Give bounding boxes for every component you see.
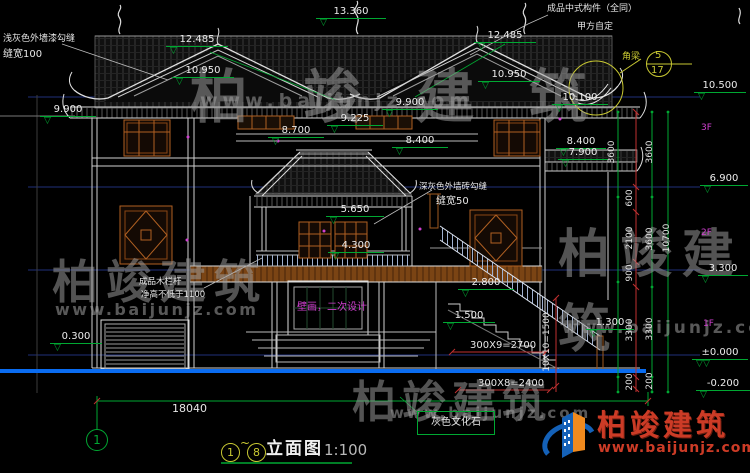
elevation-marker: 13.360▽: [316, 6, 386, 19]
note-paint-line1: 浅灰色外墙漆勾缝: [3, 35, 75, 45]
dim-floor-height: 3600: [607, 132, 617, 172]
dim-floor-height: 200: [625, 362, 635, 402]
dim-floor-height: 600: [625, 178, 635, 218]
elevation-marker: 8.400▽: [392, 135, 448, 148]
note-stone-box: 灰色文化石: [417, 411, 495, 435]
note-component-line1: 成品中式构件（全同）: [547, 5, 637, 15]
dim-floor-height: 3300: [645, 309, 655, 349]
dim-steps-lower: 300X8=2400: [478, 378, 544, 389]
title-axis-to: 8: [247, 443, 266, 462]
dim-floor-height: 200: [645, 361, 655, 401]
elevation-marker: 0.300▽: [50, 331, 102, 344]
elevation-marker: 5.650▽: [326, 204, 384, 217]
drawing-title: 立面图: [266, 440, 323, 459]
ridge-ornament-icon: [118, 1, 740, 34]
brand-logo-text: 柏竣建筑: [597, 402, 729, 444]
dim-stair-vertical: 10X10=1500: [542, 312, 552, 372]
brand-logo-icon: [538, 398, 600, 470]
elevation-marker: 1.500▽: [443, 310, 495, 323]
elevation-marker: 10.500▽: [694, 80, 746, 93]
watermark-url-left: www.baijunjz.com: [55, 300, 258, 319]
note-railing-line2: 净高不低于1100: [141, 291, 205, 300]
drawing-scale: 1:100: [324, 442, 367, 459]
elevation-marker: -0.200▽: [696, 378, 750, 391]
dim-floor-height: 900: [625, 253, 635, 293]
detail-number: 5: [655, 50, 661, 61]
entrance-steps: [246, 332, 436, 362]
elevation-marker: 7.900▽: [558, 147, 608, 160]
note-mural: 壁画，二次设计: [297, 302, 367, 313]
note-corner-beam: 角梁: [622, 53, 640, 63]
porch-roof: [252, 150, 417, 207]
dim-floor-height: 3300: [625, 310, 635, 350]
elevation-marker: 12.485▽: [166, 34, 228, 47]
floor-label-3f: 3F: [701, 124, 712, 134]
floor-label-2f: 2F: [701, 229, 712, 239]
note-railing-line1: 成品木栏杆: [139, 278, 182, 287]
elevation-marker: 10.100▽: [552, 92, 608, 105]
cad-elevation-screenshot: 柏竣建筑 www.baijunjz.com 柏竣建筑 www.baijunjz.…: [0, 0, 750, 473]
note-brick-line2: 缝宽50: [436, 196, 469, 207]
dim-floor-height: 3600: [645, 132, 655, 172]
elevation-marker: 3.300▽: [698, 263, 748, 276]
note-brick-line1: 深灰色外墙砖勾缝: [419, 183, 487, 192]
window-3f-left: [124, 120, 170, 156]
elevation-marker: 12.485▽: [474, 30, 536, 43]
dim-total-width: 18040: [172, 403, 207, 415]
elevation-marker: 9.900▽: [382, 97, 438, 110]
dim-floor-height: 2100: [625, 218, 635, 258]
elevation-marker: ±0.000▽▽: [692, 347, 748, 360]
elevation-marker: 10.950▽: [478, 69, 540, 82]
note-component-line2: 甲方自定: [577, 23, 613, 33]
dim-steps-upper: 300X9=2700: [470, 340, 536, 351]
elevation-marker: 6.900▽: [700, 173, 748, 186]
note-paint-line2: 缝宽100: [3, 49, 42, 60]
elevation-marker: 10.950▽: [172, 65, 234, 78]
elevation-marker: 4.300▽: [328, 240, 384, 253]
floor-label-1f: 1F: [703, 320, 714, 330]
axis-grid-bubble: 1: [86, 429, 108, 451]
elevation-marker: 8.700▽: [268, 125, 324, 138]
detail-sheet: 17: [651, 65, 664, 76]
dim-total-height: 10700: [662, 215, 672, 261]
dim-floor-height: 3600: [645, 219, 655, 259]
brand-logo-url: www.baijunjz.com: [598, 440, 750, 456]
garage-door: [101, 320, 189, 369]
title-axis-from: 1: [221, 443, 240, 462]
elevation-marker: 9.900▽: [40, 104, 96, 117]
elevation-marker: 2.800▽: [458, 277, 514, 290]
elevation-marker: 9.225▽: [327, 113, 383, 126]
